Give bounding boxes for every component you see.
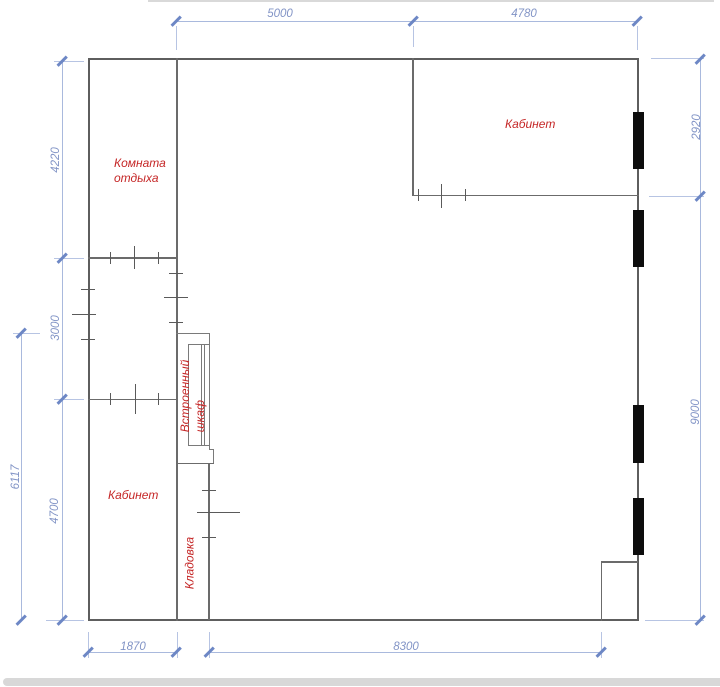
wall-bottom [88,619,639,621]
room-label-line: отдыха [114,171,166,186]
opening-tick [202,537,216,538]
opening-tick [110,252,111,264]
opening-tick [158,252,159,264]
wall-top [88,58,638,60]
opening-tick [164,297,188,298]
dim-text-4700: 4700 [49,481,61,541]
radiator-2 [633,210,644,267]
ext-line [46,620,84,621]
window-bottom-bar [3,678,720,686]
dim-text-1870: 1870 [103,641,163,653]
opening-tick [158,393,159,405]
dim-line-left [62,61,63,620]
dim-text-5000: 5000 [250,8,310,20]
wall-storage-right [208,463,210,620]
wardrobe-outer-right [209,333,210,450]
room-label-office-bottom: Кабинет [108,488,158,503]
radiator-4 [633,498,644,555]
dim-text-4220: 4220 [50,130,62,190]
opening-tick [418,189,419,201]
wardrobe-cap-top [176,333,209,334]
dim-text-9000: 9000 [690,382,702,442]
ext-line [651,58,704,59]
ext-line [88,632,89,658]
dim-text-2920: 2920 [691,97,703,157]
opening-tick [441,184,442,208]
dim-line-top [176,21,638,22]
dim-text-8300: 8300 [376,641,436,653]
wardrobe-step-v [213,449,214,463]
wall-niche-left [601,561,603,621]
wall-storage-top [176,463,214,465]
room-label-storage: Кладовка [183,537,198,589]
wall-office-top-bottom [412,195,639,197]
opening-tick [202,490,216,491]
room-label-rest-room: Комната отдыха [114,156,166,186]
wall-interior-vertical [176,58,178,621]
radiator-3 [633,405,644,463]
opening-tick [72,314,96,315]
room-label-line: Встроенный [178,360,193,433]
room-label-wardrobe: Встроенный шкаф [178,360,208,433]
ext-line [413,26,414,47]
window-top-edge [148,0,714,2]
wardrobe-cap-bottom [188,344,209,345]
dim-text-6117: 6117 [10,447,22,507]
ext-line [176,26,177,50]
dim-text-3000: 3000 [50,298,62,358]
opening-tick [169,273,183,274]
ext-line [649,196,704,197]
wall-niche-top [601,561,638,563]
dim-text-4780: 4780 [494,8,554,20]
ext-line [637,26,638,50]
opening-tick [197,512,240,513]
opening-tick [135,384,136,414]
wall-office-top-left [412,58,414,196]
opening-tick [81,289,95,290]
ext-line [177,632,178,658]
room-label-line: Комната [114,156,166,171]
floor-plan: 5000 4780 2920 9000 4220 3000 6117 4700 … [0,0,720,687]
ext-line [645,620,704,621]
ext-line [209,632,210,658]
opening-tick [169,322,183,323]
opening-tick [465,189,466,201]
radiator-1 [633,112,644,169]
room-label-line: шкаф [193,360,208,433]
ext-line [601,632,602,658]
opening-tick [81,339,95,340]
wardrobe-inner-bottom [188,445,209,446]
opening-tick [134,246,135,269]
wall-office-bottom-top [88,399,178,401]
opening-tick [110,393,111,405]
room-label-office-top: Кабинет [505,117,555,132]
